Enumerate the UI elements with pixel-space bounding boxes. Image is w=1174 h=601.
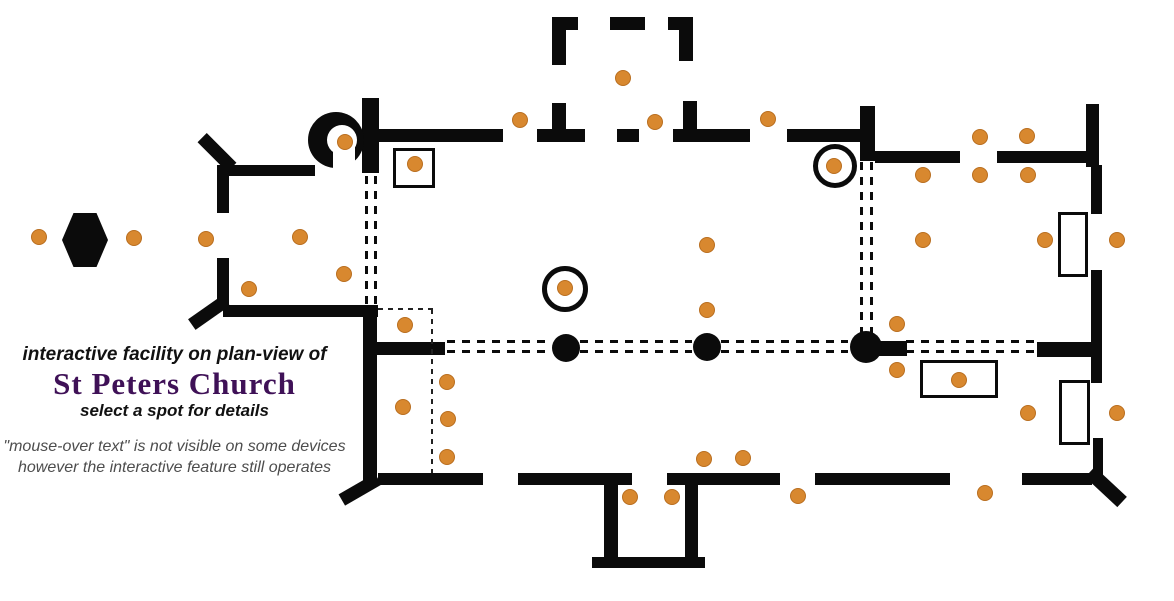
interactive-spot[interactable]	[557, 280, 573, 296]
arch-screen-dashed-line	[374, 176, 377, 305]
wall-segment	[223, 165, 315, 176]
wall-segment	[679, 17, 693, 61]
interactive-spot[interactable]	[889, 362, 905, 378]
interactive-spot[interactable]	[292, 229, 308, 245]
wall-segment	[367, 342, 445, 355]
wall-segment	[875, 151, 960, 163]
arcade-dashed-line	[447, 350, 551, 353]
interactive-spot[interactable]	[126, 230, 142, 246]
arch-screen-dashed-line	[860, 162, 863, 333]
wall-segment	[815, 473, 950, 485]
arch-screen-dashed-line	[870, 162, 873, 333]
interactive-spot[interactable]	[397, 317, 413, 333]
interactive-spot[interactable]	[1037, 232, 1053, 248]
wall-segment	[860, 106, 875, 161]
wall-segment	[673, 129, 750, 142]
wall-segment	[997, 151, 1088, 163]
interactive-spot[interactable]	[699, 237, 715, 253]
interactive-spot[interactable]	[915, 232, 931, 248]
interactive-spot[interactable]	[337, 134, 353, 150]
corner-buttress	[339, 473, 382, 505]
interactive-spot[interactable]	[615, 70, 631, 86]
interactive-spot[interactable]	[889, 316, 905, 332]
wall-segment	[592, 557, 705, 568]
area-outline-dashed	[431, 309, 433, 473]
wall-segment	[1091, 165, 1102, 214]
wall-segment	[604, 473, 618, 559]
interactive-spot[interactable]	[336, 266, 352, 282]
interactive-spot[interactable]	[972, 129, 988, 145]
interactive-spot[interactable]	[699, 302, 715, 318]
wall-segment	[667, 473, 780, 485]
wall-segment	[223, 305, 378, 317]
wall-segment	[1022, 473, 1092, 485]
caption-note-2: however the interactive feature still op…	[2, 458, 347, 478]
corner-buttress	[1085, 467, 1127, 507]
monument-rectangle	[1058, 212, 1088, 277]
interactive-spot[interactable]	[439, 449, 455, 465]
interactive-spot[interactable]	[915, 167, 931, 183]
wall-segment	[1086, 104, 1099, 167]
interactive-spot[interactable]	[1020, 167, 1036, 183]
arcade-pillar	[693, 333, 721, 361]
interactive-spot[interactable]	[951, 372, 967, 388]
interactive-spot[interactable]	[1020, 405, 1036, 421]
arcade-pillar	[552, 334, 580, 362]
arcade-dashed-line	[906, 340, 1036, 343]
caption-note-1: "mouse-over text" is not visible on some…	[2, 437, 347, 457]
wall-segment	[362, 98, 379, 173]
arcade-dashed-line	[447, 340, 551, 343]
interactive-spot[interactable]	[622, 489, 638, 505]
page-title: St Peters Church	[2, 368, 347, 401]
interactive-spot[interactable]	[647, 114, 663, 130]
wall-segment	[378, 129, 503, 142]
interactive-spot[interactable]	[1019, 128, 1035, 144]
interactive-spot[interactable]	[972, 167, 988, 183]
interactive-spot[interactable]	[760, 111, 776, 127]
wall-segment	[552, 103, 566, 131]
interactive-spot[interactable]	[395, 399, 411, 415]
arcade-dashed-line	[580, 350, 692, 353]
wall-segment	[1091, 270, 1102, 383]
arcade-dashed-line	[906, 350, 1036, 353]
arcade-dashed-line	[721, 340, 848, 343]
interactive-spot[interactable]	[439, 374, 455, 390]
caption-block: interactive facility on plan-view of St …	[2, 345, 347, 478]
arcade-dashed-line	[721, 350, 848, 353]
monument-rectangle	[1059, 380, 1090, 445]
interactive-spot[interactable]	[1109, 232, 1125, 248]
plan-canvas	[0, 0, 1174, 601]
caption-line-below: select a spot for details	[2, 402, 347, 421]
interactive-spot[interactable]	[696, 451, 712, 467]
arch-screen-dashed-line	[365, 176, 368, 305]
interactive-spot[interactable]	[241, 281, 257, 297]
wall-segment	[685, 478, 698, 559]
wall-segment	[1037, 342, 1093, 357]
interactive-spot[interactable]	[826, 158, 842, 174]
interactive-spot[interactable]	[512, 112, 528, 128]
wall-segment	[610, 17, 645, 30]
interactive-spot[interactable]	[790, 488, 806, 504]
caption-line-above: interactive facility on plan-view of	[2, 345, 347, 366]
interactive-spot[interactable]	[1109, 405, 1125, 421]
wall-segment	[683, 101, 697, 131]
interactive-plan-page: interactive facility on plan-view of St …	[0, 0, 1174, 601]
wall-segment	[378, 473, 483, 485]
hexagonal-cross-base	[62, 213, 108, 267]
wall-segment	[617, 129, 639, 142]
wall-segment	[363, 305, 377, 483]
arcade-dashed-line	[580, 340, 692, 343]
interactive-spot[interactable]	[440, 411, 456, 427]
wall-segment	[787, 129, 862, 142]
arcade-pillar	[850, 331, 882, 363]
interactive-spot[interactable]	[977, 485, 993, 501]
interactive-spot[interactable]	[407, 156, 423, 172]
interactive-spot[interactable]	[664, 489, 680, 505]
interactive-spot[interactable]	[735, 450, 751, 466]
area-outline-dashed	[378, 308, 434, 310]
interactive-spot[interactable]	[31, 229, 47, 245]
interactive-spot[interactable]	[198, 231, 214, 247]
wall-segment	[552, 17, 578, 30]
